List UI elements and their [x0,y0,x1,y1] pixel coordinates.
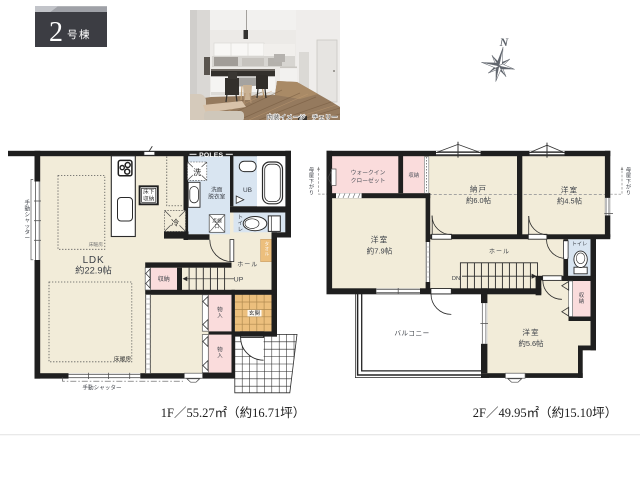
svg-text:2F／49.95㎡（約15.10坪）: 2F／49.95㎡（約15.10坪） [473,405,617,420]
svg-text:収納: 収納 [408,171,419,179]
svg-text:母屋下がり: 母屋下がり [309,167,315,197]
svg-text:洋室: 洋室 [561,184,578,194]
svg-text:口: 口 [215,224,220,230]
svg-text:物入: 物入 [217,306,223,320]
svg-text:約6.0帖: 約6.0帖 [466,196,492,205]
svg-text:UP: UP [234,277,244,284]
svg-text:ホール: ホール [489,248,510,255]
svg-text:床下: 床下 [143,188,155,196]
svg-text:ウォークイン: ウォークイン [351,169,386,177]
svg-text:タオル: タオル [265,241,270,257]
svg-text:点検: 点検 [212,217,222,224]
svg-text:約22.9帖: 約22.9帖 [75,265,112,276]
svg-text:脱衣室: 脱衣室 [208,193,225,201]
svg-text:約7.9帖: 約7.9帖 [367,246,393,256]
svg-text:手動シャッター: 手動シャッター [24,199,30,242]
svg-text:収納: 収納 [143,194,155,202]
svg-text:内装イメージ チェリー: 内装イメージ チェリー [267,114,338,122]
svg-text:物入: 物入 [217,346,223,360]
svg-text:手動シャッター: 手動シャッター [82,383,122,391]
svg-text:洋室: 洋室 [371,234,389,244]
svg-text:2: 2 [49,17,63,48]
svg-text:クローゼット: クローゼット [351,177,386,185]
svg-text:UB: UB [243,187,252,194]
svg-text:DN: DN [452,276,460,282]
svg-text:トイレ: トイレ [238,215,243,233]
svg-text:母屋下がり: 母屋下がり [626,167,632,197]
svg-text:冷: 冷 [171,217,179,227]
svg-text:号棟: 号棟 [67,28,91,41]
svg-text:洗: 洗 [193,167,201,177]
svg-text:トイレ: トイレ [572,242,588,248]
svg-text:約5.6帖: 約5.6帖 [518,339,544,348]
svg-text:ホール: ホール [237,262,258,269]
svg-text:1F／55.27㎡（約16.71坪）: 1F／55.27㎡（約16.71坪） [161,405,305,420]
svg-text:約4.5帖: 約4.5帖 [557,197,583,206]
svg-text:収納: 収納 [579,292,585,305]
svg-text:玄関: 玄関 [249,309,261,317]
svg-text:床暖房: 床暖房 [89,241,104,248]
svg-text:納戸: 納戸 [470,184,487,194]
svg-text:洋室: 洋室 [522,327,539,337]
svg-text:洗面: 洗面 [211,186,223,194]
svg-text:POLES: POLES [199,152,223,159]
svg-text:バルコニー: バルコニー [394,329,429,337]
svg-text:LDK: LDK [83,255,105,266]
svg-text:床暖房: 床暖房 [114,355,132,363]
svg-text:N: N [499,35,510,49]
svg-text:収納: 収納 [158,275,170,283]
